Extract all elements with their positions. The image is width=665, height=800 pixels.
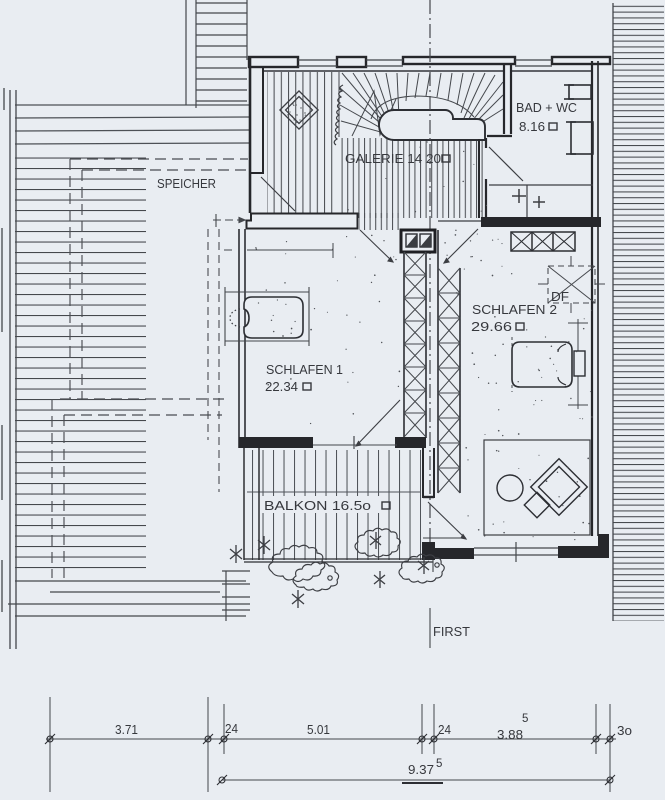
svg-text:5: 5 xyxy=(436,758,442,770)
svg-text:24: 24 xyxy=(225,721,238,736)
svg-text:9.37: 9.37 xyxy=(408,762,434,777)
svg-text:SPEICHER: SPEICHER xyxy=(157,176,216,191)
svg-text:5.01: 5.01 xyxy=(307,722,330,737)
svg-text:22.34: 22.34 xyxy=(265,379,298,394)
svg-text:3.71: 3.71 xyxy=(115,722,138,737)
svg-text:BALKON 16.5o: BALKON 16.5o xyxy=(264,498,371,513)
svg-text:SCHLAFEN 1: SCHLAFEN 1 xyxy=(266,362,343,377)
svg-text:FIRST: FIRST xyxy=(433,624,470,639)
svg-text:BAD + WC: BAD + WC xyxy=(516,100,577,115)
svg-text:3o: 3o xyxy=(617,723,632,738)
svg-text:3.88: 3.88 xyxy=(497,727,523,742)
svg-text:GALERIE 14 20: GALERIE 14 20 xyxy=(345,151,441,166)
svg-text:SCHLAFEN 2: SCHLAFEN 2 xyxy=(472,302,557,317)
svg-text:5: 5 xyxy=(522,713,528,725)
svg-text:29.66: 29.66 xyxy=(471,319,512,334)
svg-text:8.16: 8.16 xyxy=(519,119,545,134)
svg-text:24: 24 xyxy=(438,722,451,737)
